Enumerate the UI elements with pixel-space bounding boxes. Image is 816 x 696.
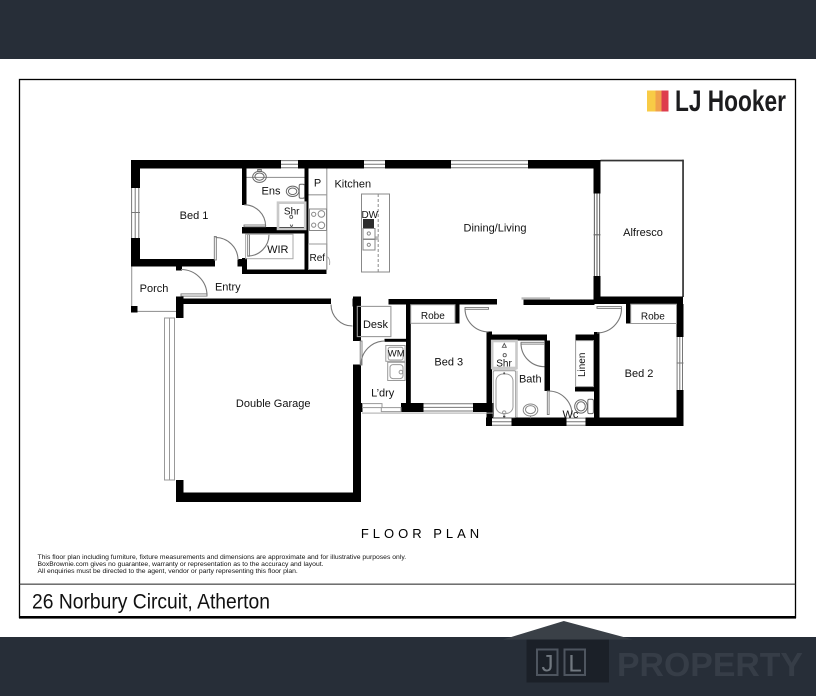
svg-text:Double Garage: Double Garage xyxy=(236,398,311,410)
svg-text:L: L xyxy=(568,651,581,678)
svg-text:FLOOR PLAN: FLOOR PLAN xyxy=(361,526,483,541)
svg-text:Robe: Robe xyxy=(421,311,445,322)
svg-text:This floor plan including furn: This floor plan including furniture, fix… xyxy=(38,554,407,561)
svg-text:Porch: Porch xyxy=(140,283,169,295)
svg-text:Shr: Shr xyxy=(496,358,512,369)
svg-text:Linen: Linen xyxy=(577,353,588,377)
svg-text:Bed 2: Bed 2 xyxy=(625,368,654,380)
svg-text:J: J xyxy=(542,651,554,678)
svg-text:Bath: Bath xyxy=(519,373,542,385)
svg-text:Alfresco: Alfresco xyxy=(623,227,663,239)
svg-text:WM: WM xyxy=(388,349,405,360)
svg-text:Wc: Wc xyxy=(563,409,579,421)
svg-text:DW: DW xyxy=(361,210,378,221)
svg-text:Shr: Shr xyxy=(284,207,300,218)
svg-text:Robe: Robe xyxy=(641,312,665,323)
svg-text:Ref: Ref xyxy=(310,253,326,264)
svg-text:LJ Hooker: LJ Hooker xyxy=(675,85,786,118)
svg-text:All enquiries must be directed: All enquiries must be directed to the ag… xyxy=(38,568,298,575)
svg-text:Ens: Ens xyxy=(262,186,281,198)
svg-text:Desk: Desk xyxy=(363,319,389,331)
svg-text:L’dry: L’dry xyxy=(371,388,395,400)
svg-text:Bed 1: Bed 1 xyxy=(180,210,209,222)
svg-text:Bed 3: Bed 3 xyxy=(434,357,463,369)
svg-text:WIR: WIR xyxy=(267,244,288,256)
svg-text:PROPERTY: PROPERTY xyxy=(617,646,803,683)
svg-text:26 Norbury Circuit, Atherton: 26 Norbury Circuit, Atherton xyxy=(32,590,270,614)
svg-text:Kitchen: Kitchen xyxy=(334,179,371,191)
svg-text:BoxBrownie.com gives no guaran: BoxBrownie.com gives no guarantee, warra… xyxy=(38,561,324,568)
svg-text:Dining/Living: Dining/Living xyxy=(464,223,527,235)
svg-text:P: P xyxy=(314,178,321,190)
svg-text:Entry: Entry xyxy=(215,282,241,294)
